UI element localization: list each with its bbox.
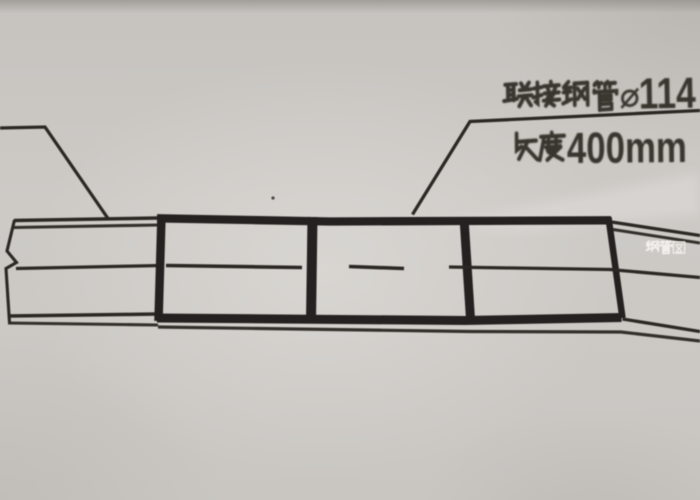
svg-text:114: 114 xyxy=(638,69,696,119)
svg-text:400mm: 400mm xyxy=(567,123,687,173)
